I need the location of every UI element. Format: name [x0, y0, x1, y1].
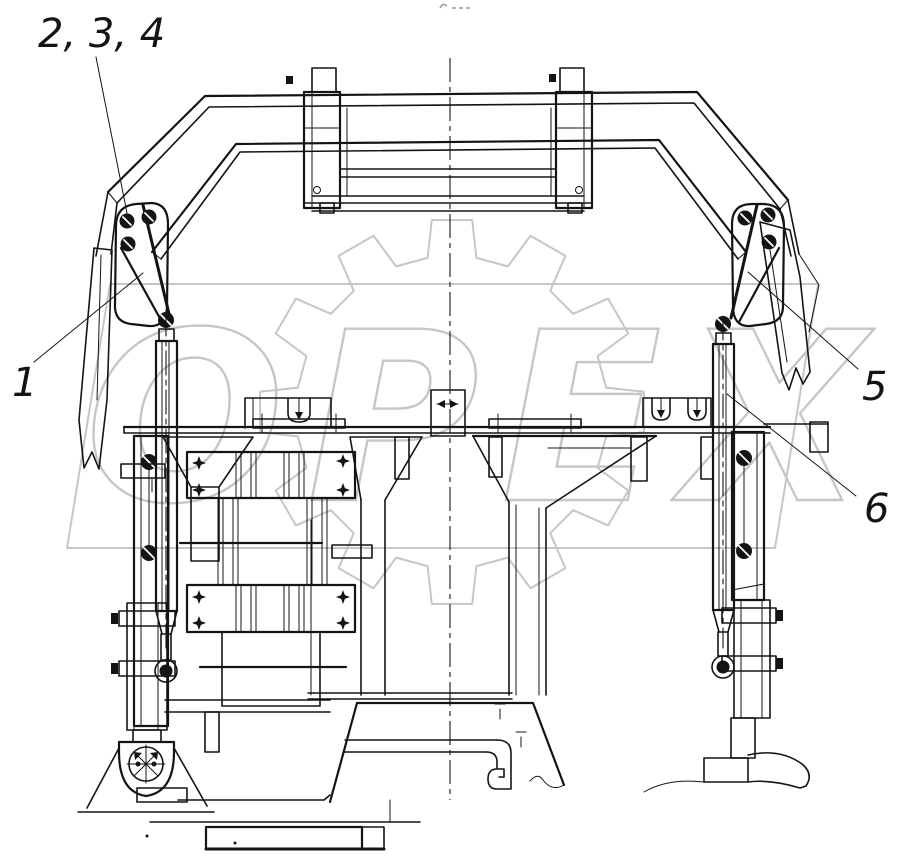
scan-artifact	[440, 4, 470, 8]
pivot-crosshair-icon	[127, 745, 165, 783]
fender-section	[748, 753, 809, 788]
gusset-bolts-right	[738, 208, 777, 250]
callout-1-label: 1	[12, 360, 37, 406]
callout-5-label: 5	[862, 364, 887, 410]
technical-drawing-sheet: OPEX	[0, 0, 900, 857]
gusset-bolts-left	[120, 210, 157, 252]
callout-234-label: 2, 3, 4	[38, 11, 165, 57]
base-plates	[150, 795, 420, 849]
pedestal-skirt	[308, 693, 564, 802]
cab-frame-drawing: OPEX	[0, 0, 900, 857]
callout-6-label: 6	[864, 486, 889, 532]
hook-profile	[488, 766, 511, 789]
roof-bow	[96, 74, 799, 259]
engine-mount-stacks	[165, 452, 372, 752]
left-base-mount	[78, 742, 214, 838]
